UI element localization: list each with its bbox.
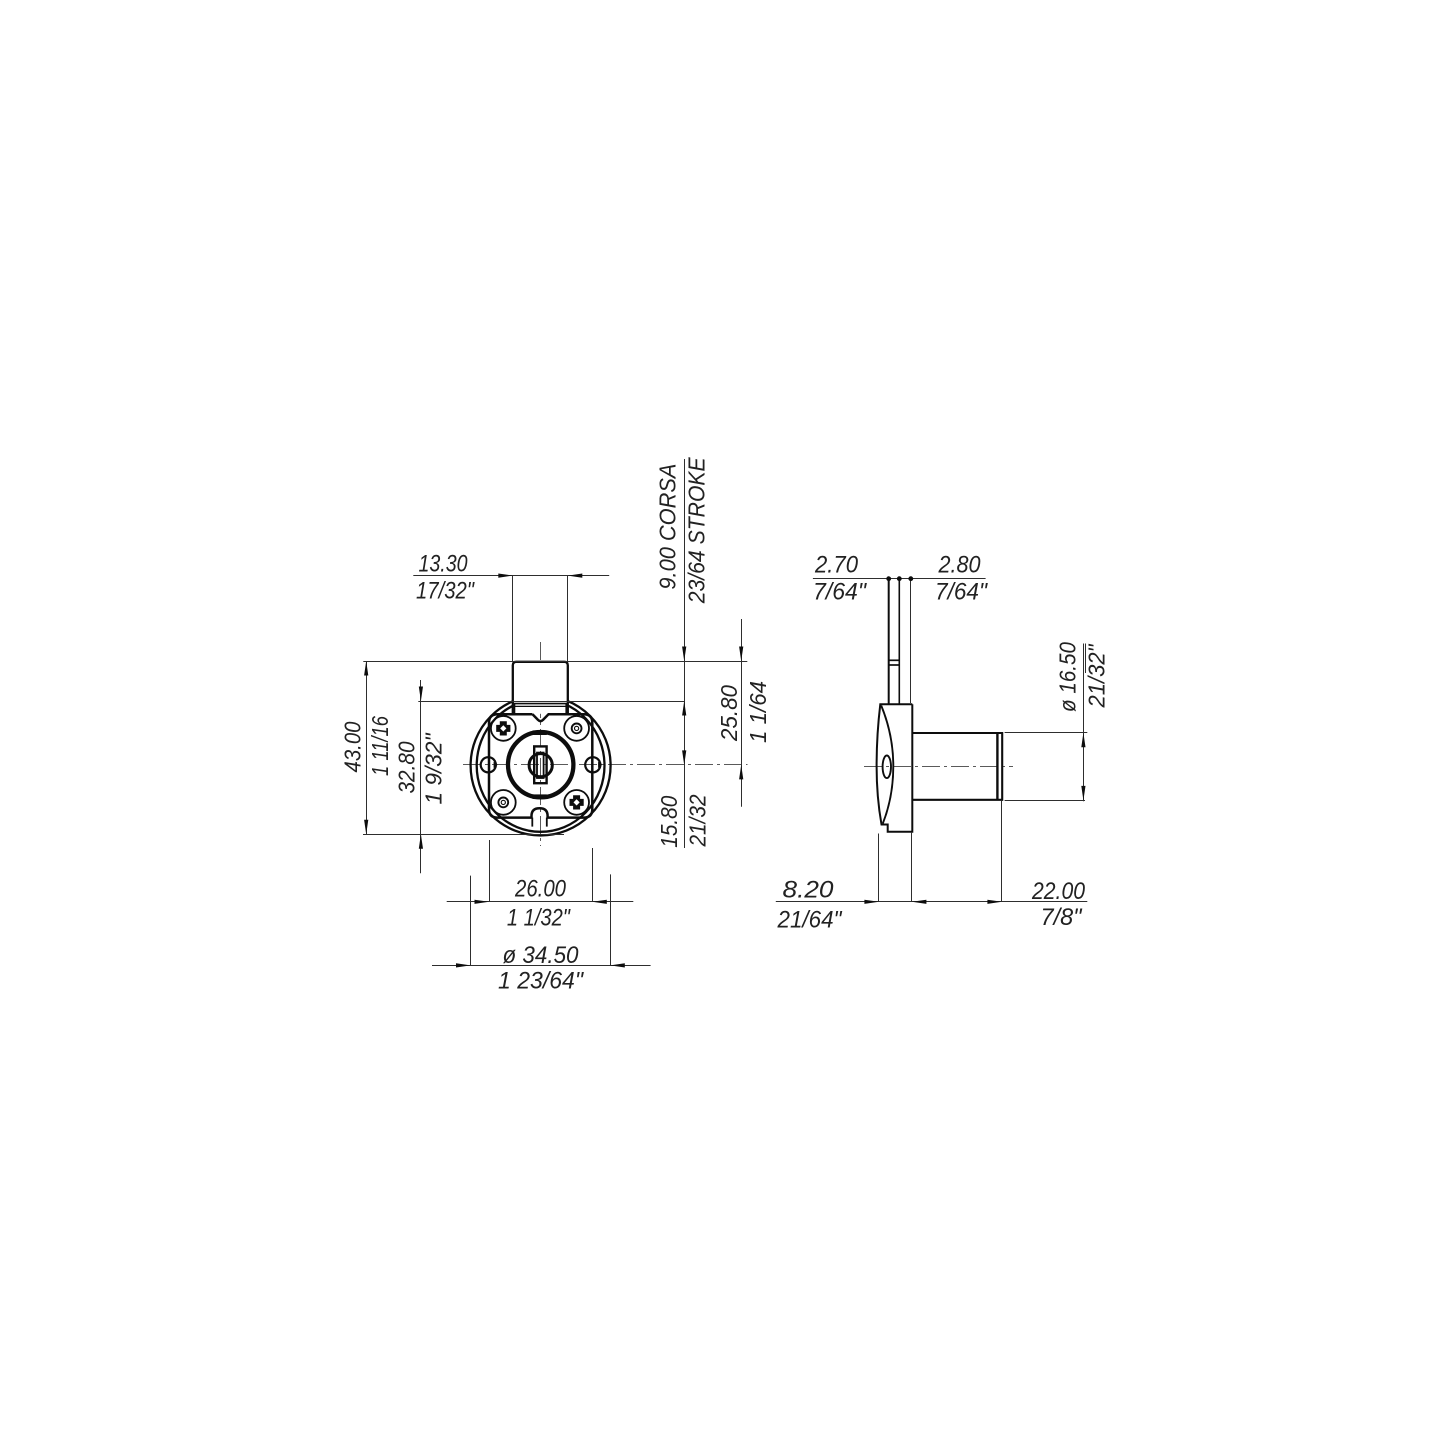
svg-text:32.80: 32.80: [394, 741, 420, 793]
svg-text:1 1/32": 1 1/32": [507, 905, 571, 932]
svg-text:21/32": 21/32": [1084, 643, 1110, 709]
svg-text:1 23/64": 1 23/64": [498, 968, 584, 995]
svg-text:17/32": 17/32": [416, 578, 475, 605]
svg-text:ø 16.50: ø 16.50: [1055, 642, 1081, 712]
svg-text:23/64 STROKE: 23/64 STROKE: [683, 457, 709, 605]
svg-text:26.00: 26.00: [514, 876, 566, 903]
svg-text:7/64": 7/64": [813, 579, 867, 606]
svg-text:1 9/32": 1 9/32": [421, 732, 447, 805]
svg-text:9.00 CORSA: 9.00 CORSA: [655, 464, 681, 590]
svg-text:7/64": 7/64": [935, 579, 988, 606]
svg-text:43.00: 43.00: [340, 721, 366, 772]
svg-text:ø 34.50: ø 34.50: [503, 942, 580, 969]
svg-text:15.80: 15.80: [656, 796, 682, 848]
svg-text:8.20: 8.20: [783, 877, 835, 904]
svg-text:7/8": 7/8": [1041, 904, 1083, 931]
svg-text:2.70: 2.70: [814, 552, 859, 579]
svg-text:1 1/64: 1 1/64: [745, 681, 771, 743]
svg-text:25.80: 25.80: [716, 685, 742, 742]
svg-text:1 11/16: 1 11/16: [367, 716, 393, 776]
svg-text:22.00: 22.00: [1031, 878, 1085, 905]
svg-text:13.30: 13.30: [419, 551, 469, 578]
svg-text:21/64": 21/64": [777, 907, 843, 934]
svg-text:21/32: 21/32: [684, 794, 710, 847]
svg-text:2.80: 2.80: [938, 552, 981, 579]
